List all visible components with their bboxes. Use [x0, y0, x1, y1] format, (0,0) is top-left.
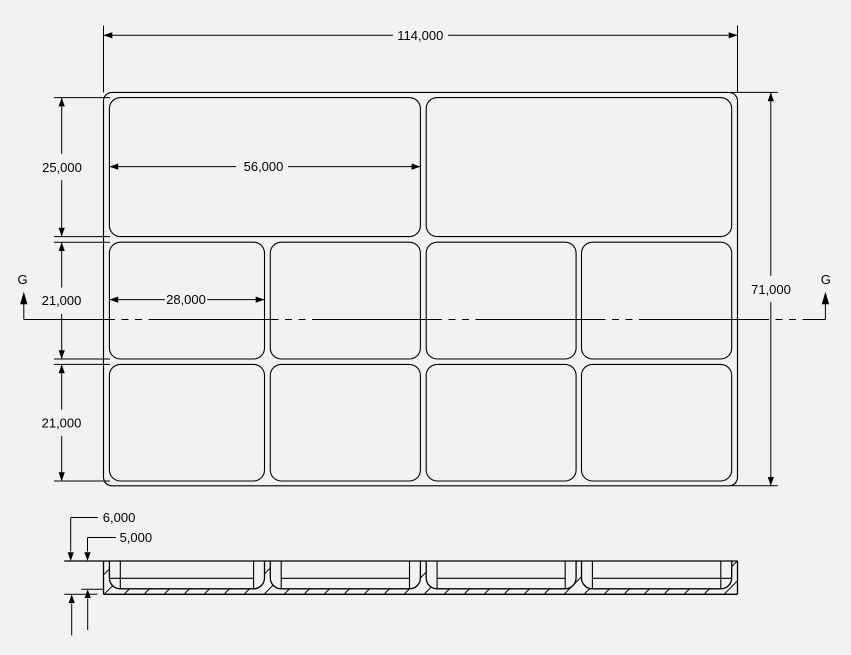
svg-text:G: G — [17, 272, 27, 287]
svg-text:G: G — [821, 272, 831, 287]
svg-text:5,000: 5,000 — [120, 530, 153, 545]
svg-text:56,000: 56,000 — [244, 159, 284, 174]
svg-text:28,000: 28,000 — [166, 292, 206, 307]
svg-text:71,000: 71,000 — [751, 282, 791, 297]
svg-text:25,000: 25,000 — [42, 160, 82, 175]
svg-text:114,000: 114,000 — [397, 28, 443, 43]
svg-text:6,000: 6,000 — [103, 510, 136, 525]
svg-text:21,000: 21,000 — [42, 293, 82, 308]
svg-text:21,000: 21,000 — [42, 415, 82, 430]
